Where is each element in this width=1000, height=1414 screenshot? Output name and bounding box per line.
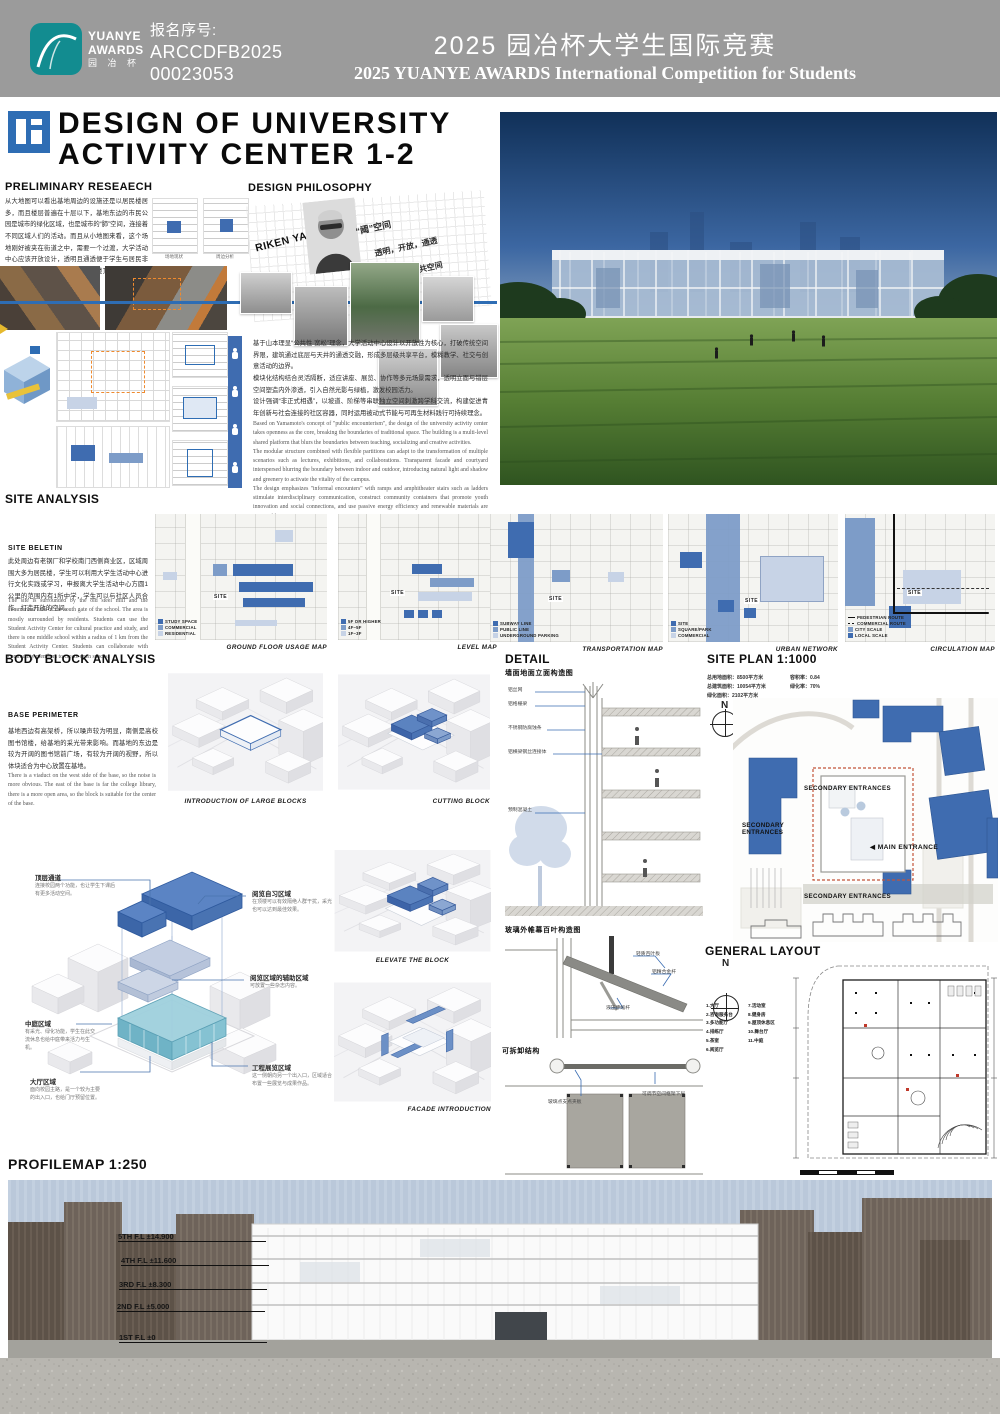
yuanye-logo-icon <box>30 23 82 75</box>
site-label: SITE <box>548 596 563 602</box>
project-title: DESIGN OF UNIVERSITY ACTIVITY CENTER 1-2 <box>58 109 451 170</box>
site-plan-stats-col2: 容积率：0.84 绿化率：70% <box>790 674 820 692</box>
wall-callout-3: 不锈钢防腐蚀条 <box>508 724 542 731</box>
reference-photo-4 <box>422 276 474 322</box>
map-urban-network: SITE SITE SQUARE/PARK COMMERCIAL <box>668 514 838 642</box>
floor-level-2: 2ND F.L ±5.000 <box>117 1302 265 1312</box>
person-icon <box>230 424 240 436</box>
wall-callout-4: 铝横梁钢丝连接体 <box>508 748 546 755</box>
map-legend: SITE SQUARE/PARK COMMERCIAL <box>671 620 712 638</box>
map-transportation: SITE SUBWAY LINE PUBLIC LINE UNDERGROUND… <box>490 514 663 642</box>
wall-section-drawing <box>505 678 703 924</box>
general-layout-heading: GENERAL LAYOUT <box>705 944 821 958</box>
yuanye-logo-text: YUANYE AWARDS 园 冶 杯 <box>88 30 144 68</box>
reference-photo-1 <box>240 272 292 314</box>
detail-sub3: 可拆卸结构 <box>502 1046 540 1056</box>
floor-level-4: 4TH F.L ±11.600 <box>121 1256 269 1266</box>
keyword-2: 透明，开放，通透 <box>374 235 439 259</box>
axon-elevate-the-block <box>334 850 491 952</box>
site-label: SITE <box>907 590 922 596</box>
map-caption: GROUND FLOOR USAGE MAP <box>155 644 327 651</box>
map-caption: LEVEL MAP <box>338 644 497 651</box>
map-legend: STUDY SPACE COMMERCIAL RESIDENTIAL <box>158 618 197 636</box>
prelim-thumb-1-caption: 场地现状 <box>152 254 196 260</box>
floor-level-3: 3RD F.L ±8.300 <box>119 1280 267 1290</box>
profile-elevation <box>0 1180 1000 1414</box>
registration-line1: ARCCDFB2025 <box>150 41 283 64</box>
map-ground-floor-usage: SITE STUDY SPACE COMMERCIAL RESIDENTIAL <box>155 514 327 640</box>
callout-exhibition-area: 工程展览区域 这一侧朝向另一个出入口，区域适合布置一些展览与成果作品。 <box>252 1062 332 1088</box>
map-legend: SUBWAY LINE PUBLIC LINE UNDERGROUND PARK… <box>493 620 559 638</box>
registration-number: 报名序号: ARCCDFB2025 00023053 <box>150 22 283 86</box>
axon-caption-2: CUTTING BLOCK <box>338 798 490 805</box>
map-legend: 5F OR HIGHER 4F~5F 1F~3F <box>341 618 381 636</box>
site-plan-stats-col1: 总用地面积：8500平方米 总建筑面积：10054平方米 绿化面积：2102平方… <box>707 674 766 701</box>
removable-callout-1: 玻璃点支点夹板 <box>548 1098 582 1105</box>
header-bar: YUANYE AWARDS 园 冶 杯 报名序号: ARCCDFB2025 00… <box>0 0 1000 97</box>
context-collage-1 <box>0 266 100 330</box>
removable-callout-2: 可调节空间框架下层 <box>642 1090 685 1097</box>
axon-cutting-block <box>338 672 490 792</box>
general-layout-plan <box>788 958 998 1166</box>
person-icon <box>230 348 240 360</box>
detail-sub1: 墙面地面立面构造图 <box>505 668 573 678</box>
louver-detail-drawing <box>505 934 703 1042</box>
mini-diagram-strip <box>172 332 226 488</box>
site-plan-drawing <box>733 698 998 942</box>
map-caption: CIRCULATION MAP <box>845 646 995 653</box>
body-block-cn: 基地西边有高架桥，所以噪声较为明显，南侧是高校图书馆楼，给基地的采光带来影响。而… <box>8 726 158 773</box>
callout-reading-area: 阅览自习区域 在顶楼可以有效隔绝人群干扰，采光也可以达到最佳效果。 <box>252 888 332 914</box>
reference-photo-3 <box>350 262 420 344</box>
project-title-line2: ACTIVITY CENTER 1-2 <box>58 140 451 171</box>
site-label: SITE <box>744 598 759 604</box>
profilemap-heading: PROFILEMAP 1:250 <box>8 1156 147 1172</box>
axon-caption-3: ELEVATE THE BLOCK <box>334 957 491 964</box>
site-label: SITE <box>213 594 228 600</box>
reference-photo-2 <box>294 286 348 346</box>
floor-level-5: 5TH F.L ±14.900 <box>118 1232 266 1242</box>
secondary-entrance-label-bottom: SECONDARY ENTRANCES <box>790 893 905 900</box>
main-entrance-label: ◀ MAIN ENTRANCE <box>870 843 938 851</box>
callout-hall-area: 大厅区域 面向校园主路，是一个较为主要的出入口，也给门厅预留位置。 <box>30 1076 102 1102</box>
layout-legend-col1: 1.大厅 2.咨询服务台 3.多功能厅 4.排练厅 5.茶室 6.阅览厅 <box>706 1002 733 1054</box>
secondary-entrance-label-top: SECONDARY ENTRANCES <box>790 785 905 792</box>
project-title-line1: DESIGN OF UNIVERSITY <box>58 109 451 140</box>
callout-atrium-area: 中庭区域 有采光、绿化功能，学生在此交流休息也给中庭带来活力与生机。 <box>25 1018 97 1052</box>
layout-legend-col2: 7.活动室 8.健身房 9.屋顶休息区 10.舞台厅 11.中庭 <box>748 1002 775 1046</box>
body-block-en: There is a viaduct on the west side of t… <box>8 772 156 809</box>
preliminary-heading: PRELIMINARY RESEAECH <box>5 181 152 193</box>
axon-introduction-of-large-blocks <box>168 672 323 792</box>
competition-title-en: 2025 YUANYE AWARDS International Competi… <box>325 63 885 84</box>
philosophy-paragraph-en: Based on Yamamoto's concept of "public e… <box>253 420 488 522</box>
prelim-thumb-2-caption: 周边分析 <box>203 254 247 260</box>
philosophy-paragraph-cn: 基于山本理显“公共性 宽松”理念，大学活动中心设计以开放性为核心，打破传统空间界… <box>253 338 488 419</box>
callout-auxiliary-area: 阅览区域的辅助区域 可放置一些杂志内容。 <box>250 972 332 990</box>
site-label: SITE <box>390 590 405 596</box>
title-logo-icon <box>8 111 50 153</box>
callout-roof-passage: 顶层通道 连接校园两个功能，也让学生下课后有更多活动空间。 <box>35 872 115 898</box>
wall-callout-1: 铝丝网 <box>508 686 522 693</box>
louver-callout-1: 轻质百叶板 <box>636 950 660 957</box>
scale-bar <box>800 1170 894 1175</box>
prelim-thumb-2 <box>203 198 249 254</box>
context-collage-2 <box>105 266 227 330</box>
hero-render-photo <box>500 112 997 485</box>
site-beletin-subheading: SITE BELETIN <box>8 545 63 552</box>
person-icon <box>230 386 240 398</box>
competition-title-cn: 2025 园冶杯大学生国际竞赛 <box>370 26 840 62</box>
map-level: SITE 5F OR HIGHER 4F~5F 1F~3F <box>338 514 497 640</box>
registration-line2: 00023053 <box>150 63 283 86</box>
axon-caption-1: INTRODUCTION OF LARGE BLOCKS <box>168 798 323 805</box>
competition-board: YUANYE AWARDS 园 冶 杯 报名序号: ARCCDFB2025 00… <box>0 0 1000 1414</box>
wall-callout-2: 铝格栅梁 <box>508 700 527 707</box>
site-sketch-plan <box>56 332 170 422</box>
secondary-entrance-label-left: SECONDARY ENTRANCES <box>742 822 784 836</box>
prelim-thumb-1 <box>152 198 198 254</box>
map-circulation: SITE PEDESTRIAN ROUTE COMMERCIAL ROUTE C… <box>845 514 995 642</box>
louver-callout-3: 液压伸缩杆 <box>606 1004 630 1011</box>
wall-callout-5: 预制混凝土 <box>508 806 532 813</box>
site-sketch-section <box>56 426 170 488</box>
north-label-2: N <box>722 958 729 969</box>
registration-label: 报名序号: <box>150 22 283 41</box>
floor-level-1: 1ST F.L ±0 <box>119 1333 267 1343</box>
site-analysis-heading: SITE ANALYSIS <box>5 492 99 506</box>
yellow-arrow-icon <box>0 324 8 334</box>
arrow-left-icon: ◀ <box>870 844 878 851</box>
logo-line3: 园 冶 杯 <box>88 58 144 68</box>
site-plan-heading: SITE PLAN 1:1000 <box>707 652 817 666</box>
body-block-heading: BODY BLOCK ANALYSIS <box>5 652 156 666</box>
person-icon <box>230 462 240 474</box>
base-perimeter-subheading: BASE PERIMETER <box>8 712 79 719</box>
map-legend: PEDESTRIAN ROUTE COMMERCIAL ROUTE CITY S… <box>848 614 906 638</box>
philosophy-heading: DESIGN PHILOSOPHY <box>248 182 372 194</box>
removable-structure-drawing <box>505 1056 703 1180</box>
axon-facade-introduction <box>334 982 491 1102</box>
logo-line2: AWARDS <box>88 44 144 58</box>
axon-caption-4: FACADE INTRODUCTION <box>334 1106 491 1113</box>
figures-banner <box>228 336 242 488</box>
louver-callout-2: 铝精合金杆 <box>652 968 676 975</box>
logo-line1: YUANYE <box>88 30 144 44</box>
concept-axon-sketch <box>0 334 52 424</box>
detail-heading: DETAIL <box>505 652 550 666</box>
